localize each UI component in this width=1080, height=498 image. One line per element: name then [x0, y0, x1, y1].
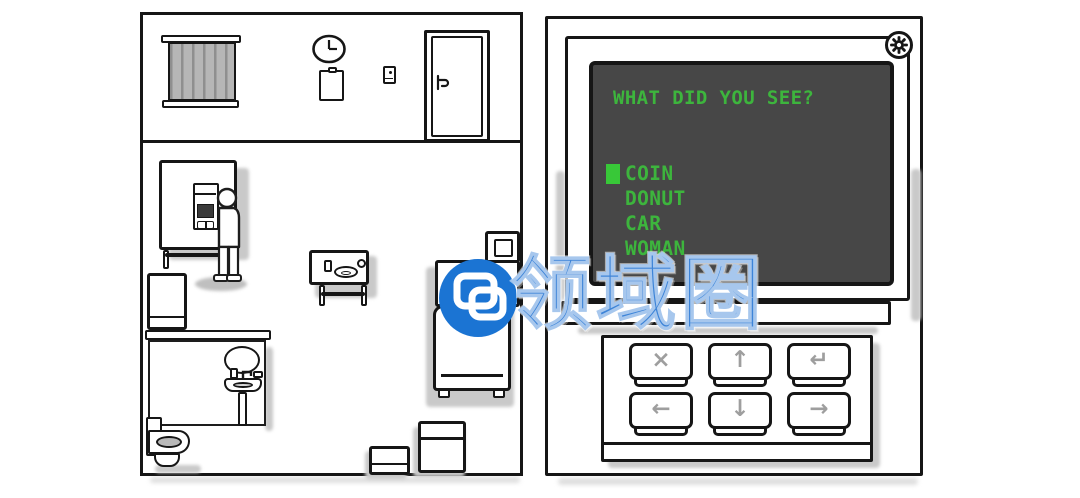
- washer-foot: [438, 389, 450, 398]
- crate-small: [369, 446, 410, 475]
- clipboard-clip: [328, 67, 337, 73]
- wall-clock: [311, 34, 347, 64]
- keypad: × ↑ ↵ ← ↓ →: [601, 335, 873, 462]
- door-handle-icon: [434, 74, 452, 92]
- bezel-shadow-right: [911, 169, 921, 321]
- cup: [324, 260, 332, 272]
- bath-panel-shadow: [265, 347, 273, 431]
- menu-item-donut[interactable]: DONUT: [606, 186, 686, 211]
- cabinet: [147, 273, 187, 330]
- down-arrow-icon: ↓: [730, 398, 749, 421]
- gear-icon: [889, 35, 909, 55]
- enter-icon: ↵: [809, 349, 828, 372]
- window-blinds: [168, 42, 236, 101]
- bathroom-counter: [145, 330, 271, 340]
- right-arrow-icon: →: [809, 398, 828, 421]
- terminal-question: WHAT DID YOU SEE?: [613, 87, 814, 109]
- window-sill-bottom: [162, 100, 239, 108]
- left-key[interactable]: ←: [629, 392, 693, 436]
- right-key[interactable]: →: [787, 392, 851, 436]
- cancel-key[interactable]: ×: [629, 343, 693, 387]
- panel-drop-shadow: [558, 478, 918, 485]
- light-switch: [383, 66, 396, 84]
- table-crossbar: [321, 292, 365, 296]
- standing-person: [207, 187, 245, 287]
- room-drop-shadow: [150, 477, 520, 483]
- donut: [357, 259, 366, 268]
- up-key[interactable]: ↑: [708, 343, 772, 387]
- menu-item-coin[interactable]: COIN: [606, 161, 686, 186]
- toilet-base: [154, 453, 180, 467]
- bathroom-wall-panel: [148, 340, 266, 426]
- settings-button[interactable]: [885, 31, 913, 59]
- watermark-text: 领域圈: [510, 254, 765, 336]
- cancel-icon: ×: [651, 349, 670, 372]
- plate: [334, 266, 358, 278]
- terminal-menu: COIN DONUT CAR WOMAN: [606, 161, 686, 261]
- watermark-logo: [439, 259, 517, 337]
- sink-bowl: [224, 378, 262, 392]
- left-arrow-icon: ←: [651, 398, 670, 421]
- sink-pedestal: [238, 392, 247, 426]
- side-table: [309, 250, 369, 285]
- device-panel: WHAT DID YOU SEE? COIN DONUT CAR: [545, 16, 923, 476]
- switch-toggle: [389, 71, 392, 74]
- up-arrow-icon: ↑: [730, 349, 749, 372]
- keypad-tray-edge: [604, 442, 870, 445]
- watermark-logo-icon: [439, 259, 517, 337]
- sink-tap-right: [253, 371, 263, 378]
- toilet-seat: [156, 436, 182, 448]
- toilet-bowl: [148, 430, 190, 454]
- down-key[interactable]: ↓: [708, 392, 772, 436]
- menu-item-car[interactable]: CAR: [606, 211, 686, 236]
- clipboard: [319, 70, 344, 101]
- washer-foot: [493, 389, 505, 398]
- enter-key[interactable]: ↵: [787, 343, 851, 387]
- crate-large: [418, 421, 466, 473]
- door-frame: [424, 30, 490, 142]
- room-view: [140, 12, 523, 476]
- door: [431, 36, 483, 137]
- game-screenshot: WHAT DID YOU SEE? COIN DONUT CAR: [0, 0, 1080, 498]
- menu-cursor: [606, 164, 620, 184]
